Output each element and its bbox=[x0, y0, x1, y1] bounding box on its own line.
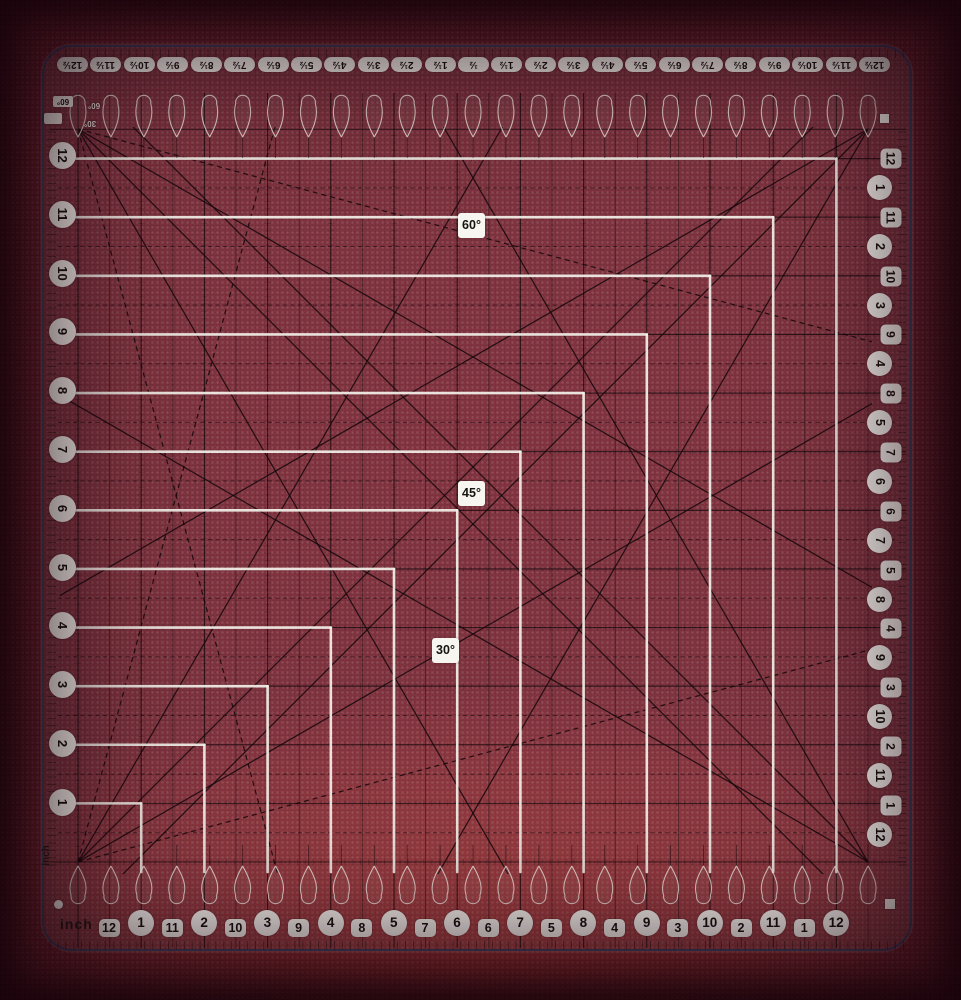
top-scale-badge: 1½ bbox=[425, 57, 456, 72]
right-scale-square-badge: 4 bbox=[881, 619, 902, 639]
bottom-scale-circle-badge: 7 bbox=[507, 910, 533, 936]
bottom-scale-circle-badge: 1 bbox=[128, 910, 154, 936]
right-scale-circle-badge: 5 bbox=[867, 410, 892, 435]
bottom-scale-square-badge: 10 bbox=[225, 919, 246, 937]
bottom-scale-square-badge: 9 bbox=[288, 919, 309, 937]
bottom-scale-circle-badge: 2 bbox=[191, 910, 217, 936]
top-scale-badge: 4½ bbox=[324, 57, 355, 72]
inch-unit-label-vertical: inch bbox=[41, 845, 52, 866]
left-scale-badge: 8 bbox=[49, 377, 76, 404]
right-scale-square-badge: 9 bbox=[881, 325, 902, 345]
top-scale-badge: 3½ bbox=[358, 57, 389, 72]
right-scale-circle-badge: 6 bbox=[867, 469, 892, 494]
top-scale-badge: 10½ bbox=[792, 57, 823, 72]
left-scale-badge: 11 bbox=[49, 201, 76, 228]
top-scale-badge: 1½ bbox=[491, 57, 522, 72]
left-scale-badge: 1 bbox=[49, 789, 76, 816]
bottom-scale-square-badge: 11 bbox=[162, 919, 183, 937]
top-scale-badge: 6½ bbox=[659, 57, 690, 72]
right-scale-circle-badge: 4 bbox=[867, 351, 892, 376]
top-scale-badge: 12½ bbox=[57, 57, 88, 72]
corner-square-marker-top-right bbox=[880, 114, 889, 123]
top-scale-badge: 5½ bbox=[291, 57, 322, 72]
left-scale-badge: 9 bbox=[49, 318, 76, 345]
left-scale-badge: 10 bbox=[49, 260, 76, 287]
bottom-scale-circle-badge: 12 bbox=[823, 910, 849, 936]
bottom-scale-circle-badge: 6 bbox=[444, 910, 470, 936]
right-scale-circle-badge: 11 bbox=[867, 763, 892, 788]
right-scale-circle-badge: 10 bbox=[867, 704, 892, 729]
right-scale-circle-badge: 7 bbox=[867, 528, 892, 553]
angle-label-60: 60° bbox=[458, 213, 485, 238]
right-scale-square-badge: 3 bbox=[881, 678, 902, 698]
corner-angle-text-60: 60° bbox=[88, 101, 100, 110]
corner-square-marker-bottom-right bbox=[885, 899, 895, 909]
top-scale-badge: 5½ bbox=[625, 57, 656, 72]
bottom-scale-square-badge: 8 bbox=[351, 919, 372, 937]
right-scale-circle-badge: 2 bbox=[867, 234, 892, 259]
top-scale-badge: 2½ bbox=[525, 57, 556, 72]
right-scale-square-badge: 7 bbox=[881, 443, 902, 463]
left-scale-badge: 7 bbox=[49, 436, 76, 463]
bottom-scale-circle-badge: 5 bbox=[381, 910, 407, 936]
right-scale-circle-badge: 9 bbox=[867, 645, 892, 670]
right-scale-circle-badge: 1 bbox=[867, 175, 892, 200]
bottom-scale-square-badge: 12 bbox=[99, 919, 120, 937]
right-scale-square-badge: 12 bbox=[881, 149, 902, 169]
top-scale-badge: ½ bbox=[458, 57, 489, 72]
right-scale-square-badge: 6 bbox=[881, 501, 902, 521]
top-scale-badge: 9½ bbox=[157, 57, 188, 72]
top-scale-badge: 6½ bbox=[258, 57, 289, 72]
right-scale-square-badge: 5 bbox=[881, 560, 902, 580]
right-scale-square-badge: 8 bbox=[881, 384, 902, 404]
ruler-markings-overlay: 12½11½10½9½8½7½6½5½4½3½2½1½½1½2½3½4½5½6½… bbox=[0, 0, 961, 1000]
bottom-scale-circle-badge: 3 bbox=[254, 910, 280, 936]
right-scale-square-badge: 1 bbox=[881, 795, 902, 815]
bottom-scale-square-badge: 5 bbox=[541, 919, 562, 937]
bottom-scale-square-badge: 2 bbox=[731, 919, 752, 937]
right-scale-square-badge: 2 bbox=[881, 737, 902, 757]
bottom-scale-circle-badge: 10 bbox=[697, 910, 723, 936]
right-scale-circle-badge: 12 bbox=[867, 822, 892, 847]
bottom-scale-square-badge: 3 bbox=[667, 919, 688, 937]
left-scale-badge: 12 bbox=[49, 142, 76, 169]
corner-dot-marker bbox=[54, 900, 63, 909]
left-scale-badge: 4 bbox=[49, 612, 76, 639]
inch-unit-label: inch bbox=[60, 916, 93, 932]
bottom-scale-square-badge: 1 bbox=[794, 919, 815, 937]
top-scale-badge: 11½ bbox=[826, 57, 857, 72]
top-scale-badge: 12½ bbox=[859, 57, 890, 72]
right-scale-square-badge: 10 bbox=[881, 266, 902, 286]
angle-label-30: 30° bbox=[432, 638, 459, 663]
bottom-scale-circle-badge: 11 bbox=[760, 910, 786, 936]
quilting-ruler-photo: 12½11½10½9½8½7½6½5½4½3½2½1½½1½2½3½4½5½6½… bbox=[0, 0, 961, 1000]
angle-label-45: 45° bbox=[458, 481, 485, 506]
bottom-scale-square-badge: 7 bbox=[415, 919, 436, 937]
left-scale-badge: 2 bbox=[49, 730, 76, 757]
corner-angle-text-30: 30° bbox=[84, 119, 96, 128]
bottom-scale-square-badge: 4 bbox=[604, 919, 625, 937]
top-scale-badge: 9½ bbox=[759, 57, 790, 72]
top-scale-badge: 7½ bbox=[224, 57, 255, 72]
top-scale-badge: 7½ bbox=[692, 57, 723, 72]
top-scale-badge: 10½ bbox=[124, 57, 155, 72]
top-scale-badge: 11½ bbox=[90, 57, 121, 72]
right-scale-circle-badge: 8 bbox=[867, 587, 892, 612]
top-scale-badge: 3½ bbox=[558, 57, 589, 72]
right-scale-square-badge: 11 bbox=[881, 207, 902, 227]
top-scale-badge: 8½ bbox=[191, 57, 222, 72]
left-scale-badge: 3 bbox=[49, 671, 76, 698]
left-scale-badge: 5 bbox=[49, 554, 76, 581]
bottom-scale-circle-badge: 4 bbox=[318, 910, 344, 936]
right-scale-circle-badge: 3 bbox=[867, 293, 892, 318]
top-scale-badge: 4½ bbox=[592, 57, 623, 72]
bottom-scale-square-badge: 6 bbox=[478, 919, 499, 937]
corner-angle-badge-60: 60° bbox=[53, 96, 73, 107]
top-scale-badge: 2½ bbox=[391, 57, 422, 72]
bottom-scale-circle-badge: 8 bbox=[570, 910, 596, 936]
left-scale-badge: 6 bbox=[49, 495, 76, 522]
top-scale-badge: 8½ bbox=[725, 57, 756, 72]
bottom-scale-circle-badge: 9 bbox=[634, 910, 660, 936]
corner-angle-badge-blank bbox=[44, 113, 62, 124]
